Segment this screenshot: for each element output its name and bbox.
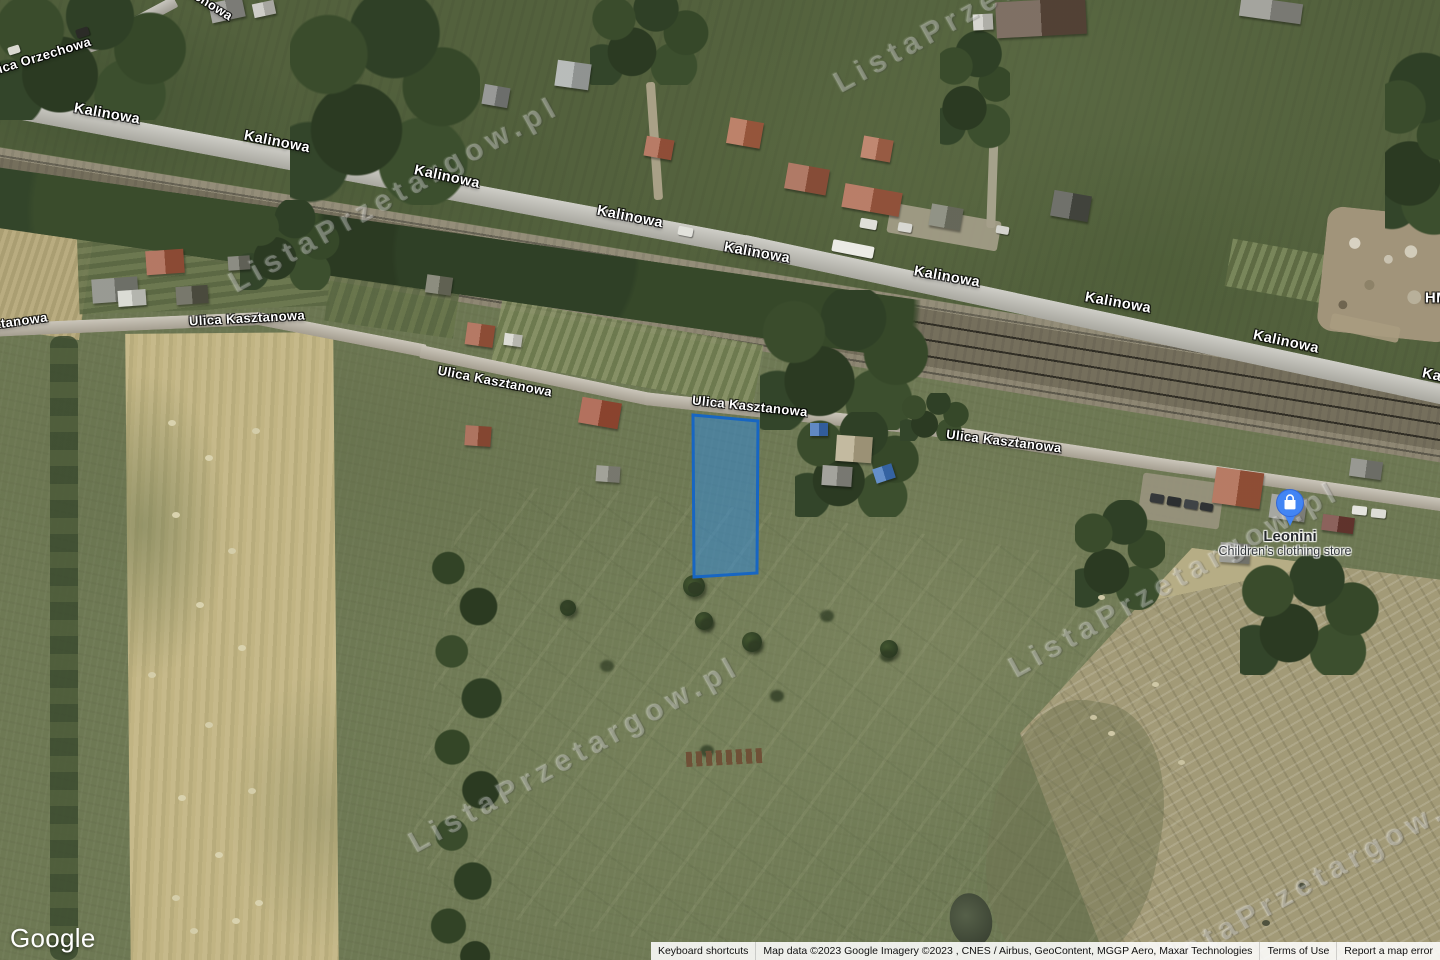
blue-tarp xyxy=(810,423,828,436)
tree-cluster xyxy=(1385,50,1440,240)
building xyxy=(595,465,620,483)
vehicle xyxy=(1352,505,1368,516)
place-label-partial: HM xyxy=(1425,290,1440,307)
vehicle xyxy=(1371,508,1387,519)
attribution-bar: Keyboard shortcuts Map data ©2023 Google… xyxy=(651,942,1440,960)
building-red-roof xyxy=(464,425,491,447)
tree-cluster xyxy=(940,30,1010,150)
building-red-roof xyxy=(465,322,496,348)
plowed-field xyxy=(125,332,339,960)
street-label-kasztanowa: Ulica Kasztanowa xyxy=(945,426,1062,455)
map-data-attribution: Map data ©2023 Google Imagery ©2023 , CN… xyxy=(755,942,1259,960)
poi-pin[interactable] xyxy=(1273,488,1307,528)
keyboard-shortcuts-button[interactable]: Keyboard shortcuts xyxy=(651,942,755,960)
hay-bales xyxy=(168,420,176,426)
building xyxy=(1349,458,1383,480)
farm-building xyxy=(835,435,873,463)
building xyxy=(117,289,146,307)
report-map-error-link[interactable]: Report a map error xyxy=(1336,942,1440,960)
map-canvas[interactable]: ListaPrzetargow.pl ListaPrzetargow.pl Li… xyxy=(0,0,1440,960)
poi-name[interactable]: Leonini xyxy=(1263,528,1316,545)
hedgerow xyxy=(50,336,78,960)
tree xyxy=(880,640,898,658)
building xyxy=(175,285,208,305)
building xyxy=(503,333,522,347)
tree-row xyxy=(397,546,537,960)
building xyxy=(1321,514,1355,534)
tree xyxy=(695,612,713,630)
building xyxy=(554,60,591,90)
terms-of-use-link[interactable]: Terms of Use xyxy=(1259,942,1336,960)
farm-building xyxy=(821,465,852,487)
bushes xyxy=(688,582,702,594)
tree xyxy=(742,632,762,652)
building-red-roof xyxy=(1212,467,1265,509)
building-red-roof xyxy=(726,117,764,149)
google-logo[interactable]: Google xyxy=(10,923,96,954)
building xyxy=(481,84,510,108)
building xyxy=(425,274,453,295)
building-red-roof xyxy=(578,397,622,430)
tree xyxy=(560,600,576,616)
tree-cluster xyxy=(590,0,710,85)
building-red-roof xyxy=(145,249,185,276)
poi-category: Children's clothing store xyxy=(1218,544,1351,558)
tree-cluster xyxy=(1240,555,1380,675)
